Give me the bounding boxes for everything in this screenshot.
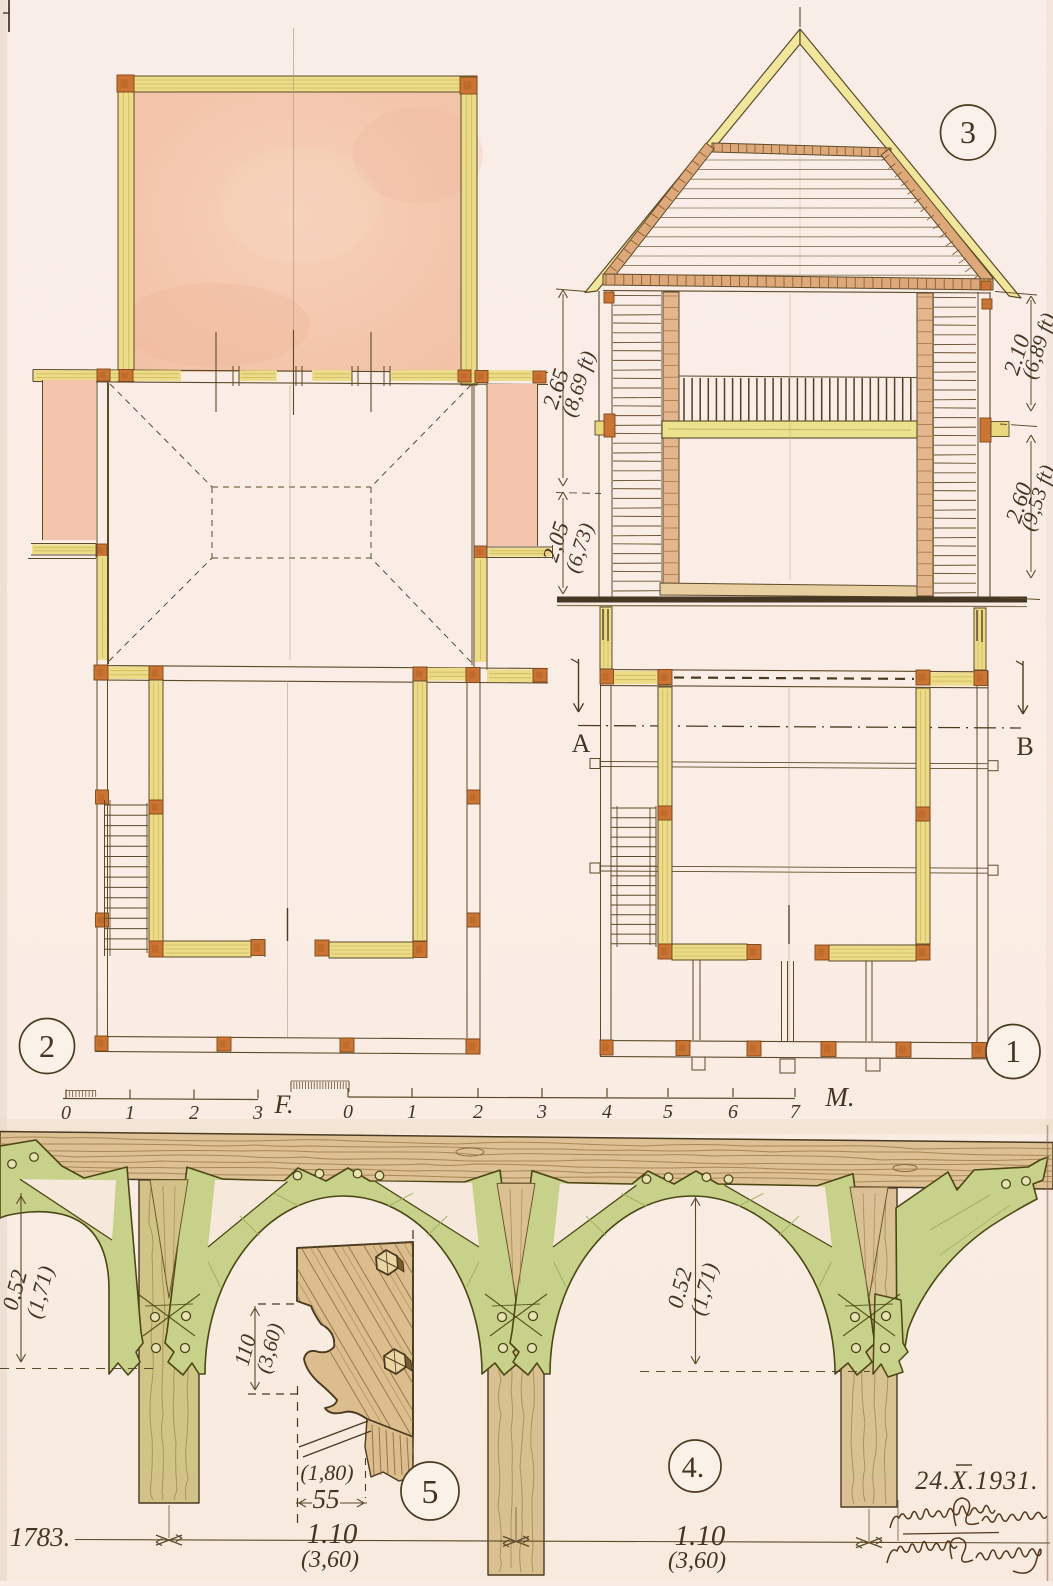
svg-text:(3,60): (3,60) (668, 1548, 726, 1574)
svg-text:A: A (572, 729, 591, 758)
svg-text:F.: F. (273, 1090, 293, 1119)
svg-text:1783.: 1783. (10, 1522, 71, 1552)
svg-text:1: 1 (1005, 1033, 1021, 1069)
svg-text:55: 55 (313, 1484, 340, 1514)
svg-text:4.: 4. (682, 1451, 705, 1484)
svg-text:(1,80): (1,80) (300, 1460, 353, 1485)
svg-text:(3,60): (3,60) (301, 1547, 359, 1573)
svg-text:5: 5 (422, 1474, 439, 1511)
svg-text:1.10: 1.10 (307, 1518, 358, 1550)
svg-text:24.X.1931.: 24.X.1931. (915, 1466, 1038, 1495)
svg-text:3: 3 (960, 114, 976, 150)
svg-text:2: 2 (39, 1028, 55, 1064)
svg-text:M.: M. (824, 1082, 854, 1112)
svg-text:B: B (1016, 732, 1033, 761)
